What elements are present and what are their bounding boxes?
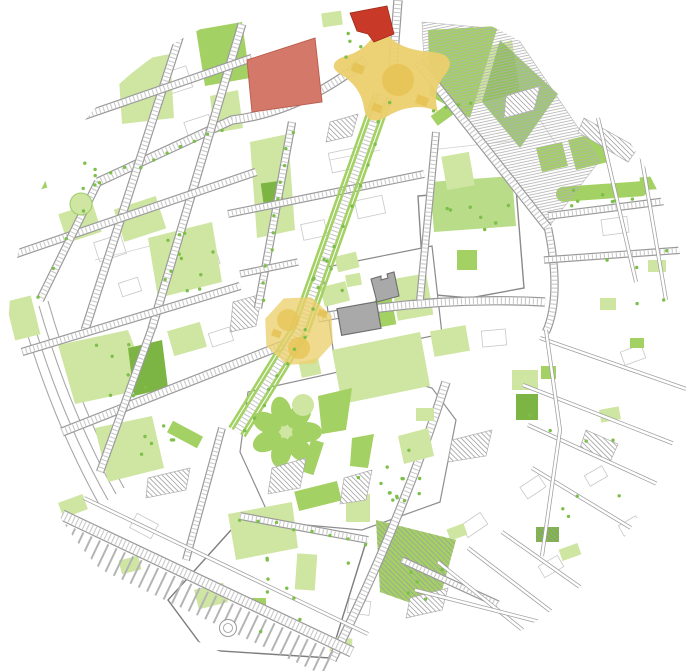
tree-dot [357, 476, 360, 479]
tree-dot [198, 287, 201, 290]
map-content [0, 0, 695, 671]
tree-dot [165, 151, 168, 154]
tree-dot [180, 257, 183, 260]
tree-dot [570, 204, 573, 207]
tree-dot [350, 204, 353, 207]
tree-dot [662, 298, 665, 301]
tree-dot [272, 231, 275, 234]
tree-dot [409, 571, 412, 574]
tree-dot [567, 515, 570, 518]
tree-dot [139, 166, 142, 169]
tree-dot [449, 208, 452, 211]
tree-dot [364, 543, 367, 546]
tree-dot [272, 214, 275, 217]
tree-dot [446, 207, 449, 210]
tree-dot [132, 394, 135, 397]
tree-dot [150, 442, 153, 445]
tree-dot [665, 249, 668, 252]
tree-dot [359, 184, 362, 187]
green-area [630, 338, 644, 348]
tree-dot [611, 439, 614, 442]
tree-dot [256, 520, 259, 523]
tree-dot [243, 429, 246, 432]
tree-dot [328, 534, 331, 537]
tree-dot [292, 131, 295, 134]
tree-dot [440, 568, 443, 571]
tree-dot [93, 168, 96, 171]
tree-dot [292, 528, 295, 531]
tree-dot [330, 267, 333, 270]
tree-dot [311, 278, 314, 281]
tree-dot [507, 204, 510, 207]
tree-dot [82, 187, 85, 190]
tree-dot [166, 239, 169, 242]
tree-dot [457, 103, 460, 106]
tree-dot [576, 200, 579, 203]
tree-dot [341, 289, 344, 292]
tree-dot [94, 174, 97, 177]
tree-dot [304, 328, 307, 331]
tree-dot [611, 200, 614, 203]
circular-city-map [0, 0, 697, 671]
tree-dot [528, 414, 531, 417]
tree-dot [264, 264, 267, 267]
tree-dot [98, 181, 101, 184]
tree-dot [341, 225, 344, 228]
tree-dot [311, 307, 314, 310]
park-lawn [416, 408, 434, 421]
tree-dot [262, 299, 265, 302]
tree-dot [267, 388, 270, 391]
tree-dot [199, 273, 202, 276]
tree-dot [483, 228, 486, 231]
tree-dot [179, 145, 182, 148]
tree-dot [266, 558, 269, 561]
tree-dot [271, 248, 274, 251]
tree-dot [418, 492, 421, 495]
tree-dot [373, 143, 376, 146]
tree-dot [93, 183, 96, 186]
tree-dot [403, 499, 406, 502]
tree-dot [432, 109, 435, 112]
tree-dot [170, 438, 173, 441]
tree-dot [127, 373, 130, 376]
tree-dot [183, 232, 186, 235]
tree-dot [310, 530, 313, 533]
green-roundabout [70, 193, 92, 215]
plaza-top-island [382, 64, 414, 96]
tree-dot [284, 147, 287, 150]
tree-dot [344, 55, 347, 58]
map-stage [0, 0, 697, 671]
tree-dot [286, 362, 289, 365]
tree-dot [163, 278, 166, 281]
green-area [600, 298, 616, 310]
tree-dot [402, 477, 405, 480]
tree-dot [407, 591, 410, 594]
tree-dot [317, 286, 320, 289]
tree-dot [359, 45, 362, 48]
tree-dot [549, 429, 552, 432]
tree-dot [605, 258, 608, 261]
tree-dot [424, 598, 427, 601]
tree-dot [303, 336, 306, 339]
green-area [321, 11, 343, 28]
tree-dot [322, 258, 325, 261]
tree-dot [193, 140, 196, 143]
tree-dot [388, 491, 391, 494]
tree-dot [238, 519, 241, 522]
green-area [457, 250, 477, 270]
tree-dot [95, 344, 98, 347]
green-area [648, 260, 666, 272]
tree-dot [618, 494, 621, 497]
tree-dot [275, 521, 278, 524]
tree-dot [561, 507, 564, 510]
green-area [441, 152, 474, 190]
tree-dot [82, 209, 85, 212]
tree-dot [275, 374, 278, 377]
tree-dot [279, 181, 282, 184]
tree-dot [572, 189, 575, 192]
tree-dot [391, 498, 394, 501]
green-area [0, 150, 21, 168]
tree-dot [83, 162, 86, 165]
tree-dot [109, 171, 112, 174]
tree-dot [631, 197, 634, 200]
tree-dot [415, 580, 418, 583]
tree-dot [140, 453, 143, 456]
tree-dot [178, 252, 181, 255]
tree-dot [407, 449, 410, 452]
tree-dot [152, 158, 155, 161]
tree-dot [36, 295, 39, 298]
tree-dot [123, 166, 126, 169]
tree-dot [266, 590, 269, 593]
tree-dot [253, 416, 256, 419]
tree-dot [348, 40, 351, 43]
tree-dot [376, 120, 379, 123]
tree-dot [379, 482, 382, 485]
tree-dot [169, 270, 172, 273]
tree-dot [346, 537, 349, 540]
tree-dot [469, 102, 472, 105]
tree-dot [259, 630, 262, 633]
tree-dot [261, 281, 264, 284]
tree-dot [127, 343, 130, 346]
tree-dot [293, 348, 296, 351]
plaza-central-island [277, 309, 299, 331]
green-area [516, 394, 538, 420]
tree-dot [444, 106, 447, 109]
tree-dot [220, 129, 223, 132]
tree-dot [479, 216, 482, 219]
tree-dot [292, 596, 295, 599]
tree-dot [298, 618, 301, 621]
tree-dot [601, 193, 604, 196]
tree-dot [585, 439, 588, 442]
tree-dot [143, 435, 146, 438]
building-outline [481, 329, 506, 347]
plaza-central-island [288, 337, 310, 359]
quay-roundabout [220, 620, 237, 637]
tree-dot [109, 394, 112, 397]
tree-dot [65, 237, 68, 240]
tree-dot [347, 32, 350, 35]
tree-dot [635, 266, 638, 269]
tree-dot [388, 101, 391, 104]
tree-dot [266, 577, 269, 580]
tree-dot [418, 477, 421, 480]
tree-dot [52, 267, 55, 270]
tree-dot [162, 424, 165, 427]
tree-dot [325, 259, 328, 262]
tree-dot [186, 289, 189, 292]
tree-dot [395, 495, 398, 498]
tree-dot [111, 355, 114, 358]
tree-dot [469, 206, 472, 209]
tree-dot [332, 245, 335, 248]
tree-dot [366, 163, 369, 166]
green-area [345, 273, 362, 287]
tree-dot [285, 587, 288, 590]
tree-dot [211, 250, 214, 253]
tree-dot [206, 132, 209, 135]
green-area [295, 553, 317, 590]
tree-dot [494, 221, 497, 224]
tree-dot [283, 164, 286, 167]
tree-dot [635, 302, 638, 305]
tree-dot [276, 197, 279, 200]
tree-dot [576, 495, 579, 498]
tree-dot [263, 404, 266, 407]
tree-dot [347, 561, 350, 564]
tree-dot [386, 465, 389, 468]
tree-dot [143, 386, 146, 389]
tree-dot [178, 233, 181, 236]
